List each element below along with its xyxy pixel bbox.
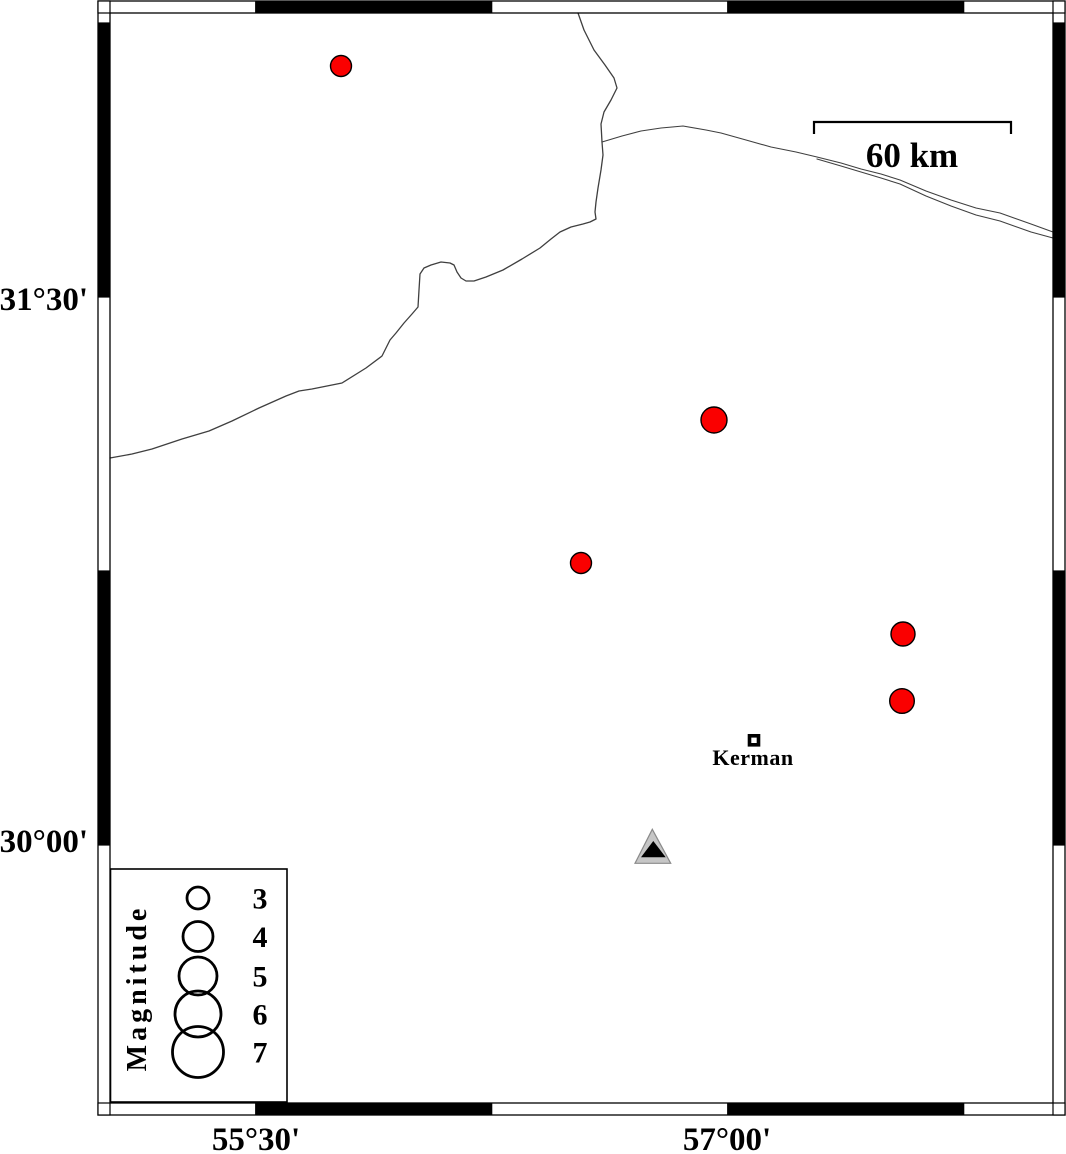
city-label: Kerman [712, 745, 793, 770]
axis-label-lat-1: 30°00' [0, 824, 88, 860]
legend-label-3: 3 [253, 883, 268, 916]
frame-segment-right [1053, 23, 1065, 297]
legend-label-5: 5 [253, 961, 268, 994]
frame-corner [98, 1103, 110, 1115]
epicenter-circle [891, 622, 915, 646]
border-line-west [110, 142, 603, 458]
frame-corner [1053, 1103, 1065, 1115]
axis-label-lon-0: 55°30' [212, 1122, 300, 1154]
epicenter-circle [571, 553, 592, 574]
scale-bar-label: 60 km [866, 136, 958, 175]
map-svg: Kerman 60 km Magnitude 3 4 5 6 7 31°30' … [0, 0, 1066, 1154]
frame-segment-right [1053, 571, 1065, 845]
frame-segment-top [728, 1, 964, 13]
axis-label-lat-0: 31°30' [0, 282, 88, 318]
legend-label-4: 4 [253, 921, 268, 954]
epicenter-circle [331, 56, 352, 77]
seismicity-map: Kerman 60 km Magnitude 3 4 5 6 7 31°30' … [0, 0, 1066, 1154]
axis-label-lon-1: 57°00' [683, 1122, 771, 1154]
scale-bar [814, 122, 1011, 134]
border-line-north [578, 13, 617, 142]
legend-layer: Magnitude 3 4 5 6 7 [111, 869, 288, 1102]
frame-segment-bottom [728, 1103, 964, 1115]
city-marker [750, 736, 759, 745]
legend-label-6: 6 [253, 999, 268, 1032]
legend-label-7: 7 [253, 1037, 268, 1070]
frame-corner [1053, 1, 1065, 13]
frame-segment-bottom [256, 1103, 492, 1115]
station-layer [635, 829, 671, 863]
epicenter-circle [701, 407, 727, 433]
frame-segment-left [98, 23, 110, 297]
frame-segment-top [256, 1, 492, 13]
epicenter-circle [890, 689, 915, 714]
frame-segment-left [98, 571, 110, 845]
city-layer: Kerman [712, 736, 793, 770]
epicenters-layer [331, 56, 916, 714]
river-line-upper [602, 126, 1053, 232]
legend-title: Magnitude [122, 905, 153, 1072]
map-lines-layer [110, 13, 1053, 458]
frame-corner [98, 1, 110, 13]
